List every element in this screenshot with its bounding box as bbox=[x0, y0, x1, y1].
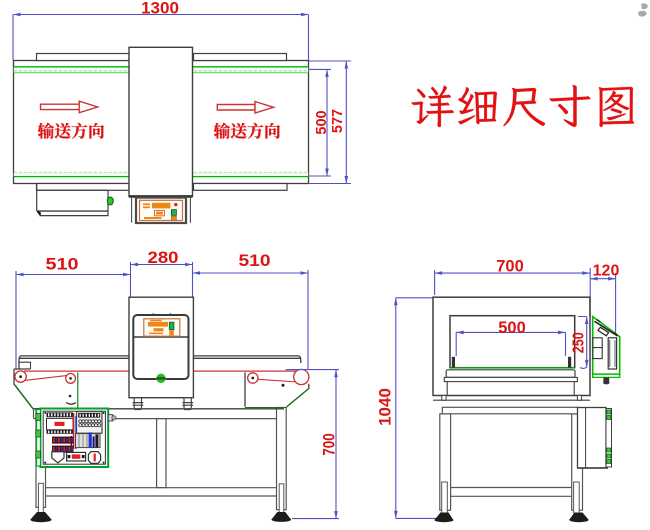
svg-text:510: 510 bbox=[239, 251, 271, 270]
svg-text:510: 510 bbox=[46, 255, 79, 274]
svg-text:700: 700 bbox=[319, 433, 338, 456]
svg-text:700: 700 bbox=[496, 258, 524, 276]
svg-text:500: 500 bbox=[498, 319, 526, 337]
svg-text:120: 120 bbox=[593, 263, 620, 280]
svg-text:250: 250 bbox=[571, 332, 588, 353]
svg-text:280: 280 bbox=[148, 248, 179, 267]
svg-text:500: 500 bbox=[314, 110, 330, 134]
svg-text:1040: 1040 bbox=[376, 388, 395, 426]
svg-text:1300: 1300 bbox=[141, 0, 179, 18]
svg-text:577: 577 bbox=[330, 109, 346, 133]
